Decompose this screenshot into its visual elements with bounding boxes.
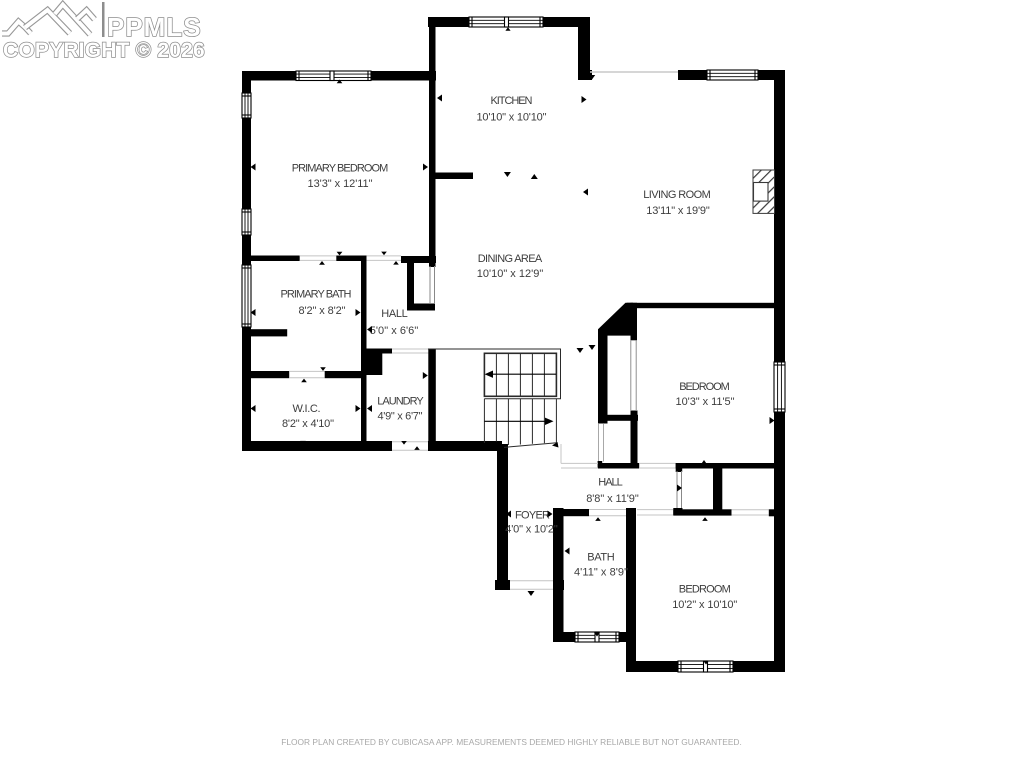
svg-text:PPMLS: PPMLS <box>107 12 202 42</box>
svg-text:PRIMARY BATH: PRIMARY BATH <box>281 288 352 300</box>
svg-text:LIVING ROOM: LIVING ROOM <box>643 189 711 201</box>
svg-text:HALL: HALL <box>381 308 408 320</box>
svg-text:KITCHEN: KITCHEN <box>491 95 533 107</box>
svg-text:LAUNDRY: LAUNDRY <box>377 396 424 408</box>
svg-text:8'2" x 8'2": 8'2" x 8'2" <box>299 305 346 317</box>
svg-text:13'3" x 12'11": 13'3" x 12'11" <box>308 178 373 190</box>
svg-text:PRIMARY BEDROOM: PRIMARY BEDROOM <box>292 163 389 175</box>
svg-text:5'0" x 6'6": 5'0" x 6'6" <box>370 325 419 337</box>
svg-text:HALL: HALL <box>598 477 623 489</box>
svg-text:W.I.C.: W.I.C. <box>293 403 321 415</box>
svg-text:FOYER: FOYER <box>515 510 550 522</box>
svg-text:4'0" x 10'2": 4'0" x 10'2" <box>505 524 558 536</box>
svg-text:10'2" x 10'10": 10'2" x 10'10" <box>672 599 737 611</box>
svg-text:13'11" x 19'9": 13'11" x 19'9" <box>646 205 710 217</box>
svg-text:DINING AREA: DINING AREA <box>478 253 543 265</box>
svg-text:8'8" x 11'9": 8'8" x 11'9" <box>586 493 639 505</box>
svg-text:BATH: BATH <box>587 552 615 564</box>
svg-text:4'11" x 8'9": 4'11" x 8'9" <box>574 567 628 579</box>
svg-text:FLOOR PLAN CREATED BY CUBICASA: FLOOR PLAN CREATED BY CUBICASA APP. MEAS… <box>281 737 742 747</box>
svg-text:10'10" x 10'10": 10'10" x 10'10" <box>477 112 547 124</box>
svg-text:10'10" x 12'9": 10'10" x 12'9" <box>477 268 544 280</box>
svg-text:BEDROOM: BEDROOM <box>679 381 730 393</box>
svg-text:10'3" x 11'5": 10'3" x 11'5" <box>676 396 735 408</box>
svg-text:8'2" x 4'10": 8'2" x 4'10" <box>282 418 334 430</box>
svg-text:COPYRIGHT © 2026: COPYRIGHT © 2026 <box>3 39 205 62</box>
svg-text:BEDROOM: BEDROOM <box>679 584 731 596</box>
svg-text:4'9" x 6'7": 4'9" x 6'7" <box>378 411 423 423</box>
